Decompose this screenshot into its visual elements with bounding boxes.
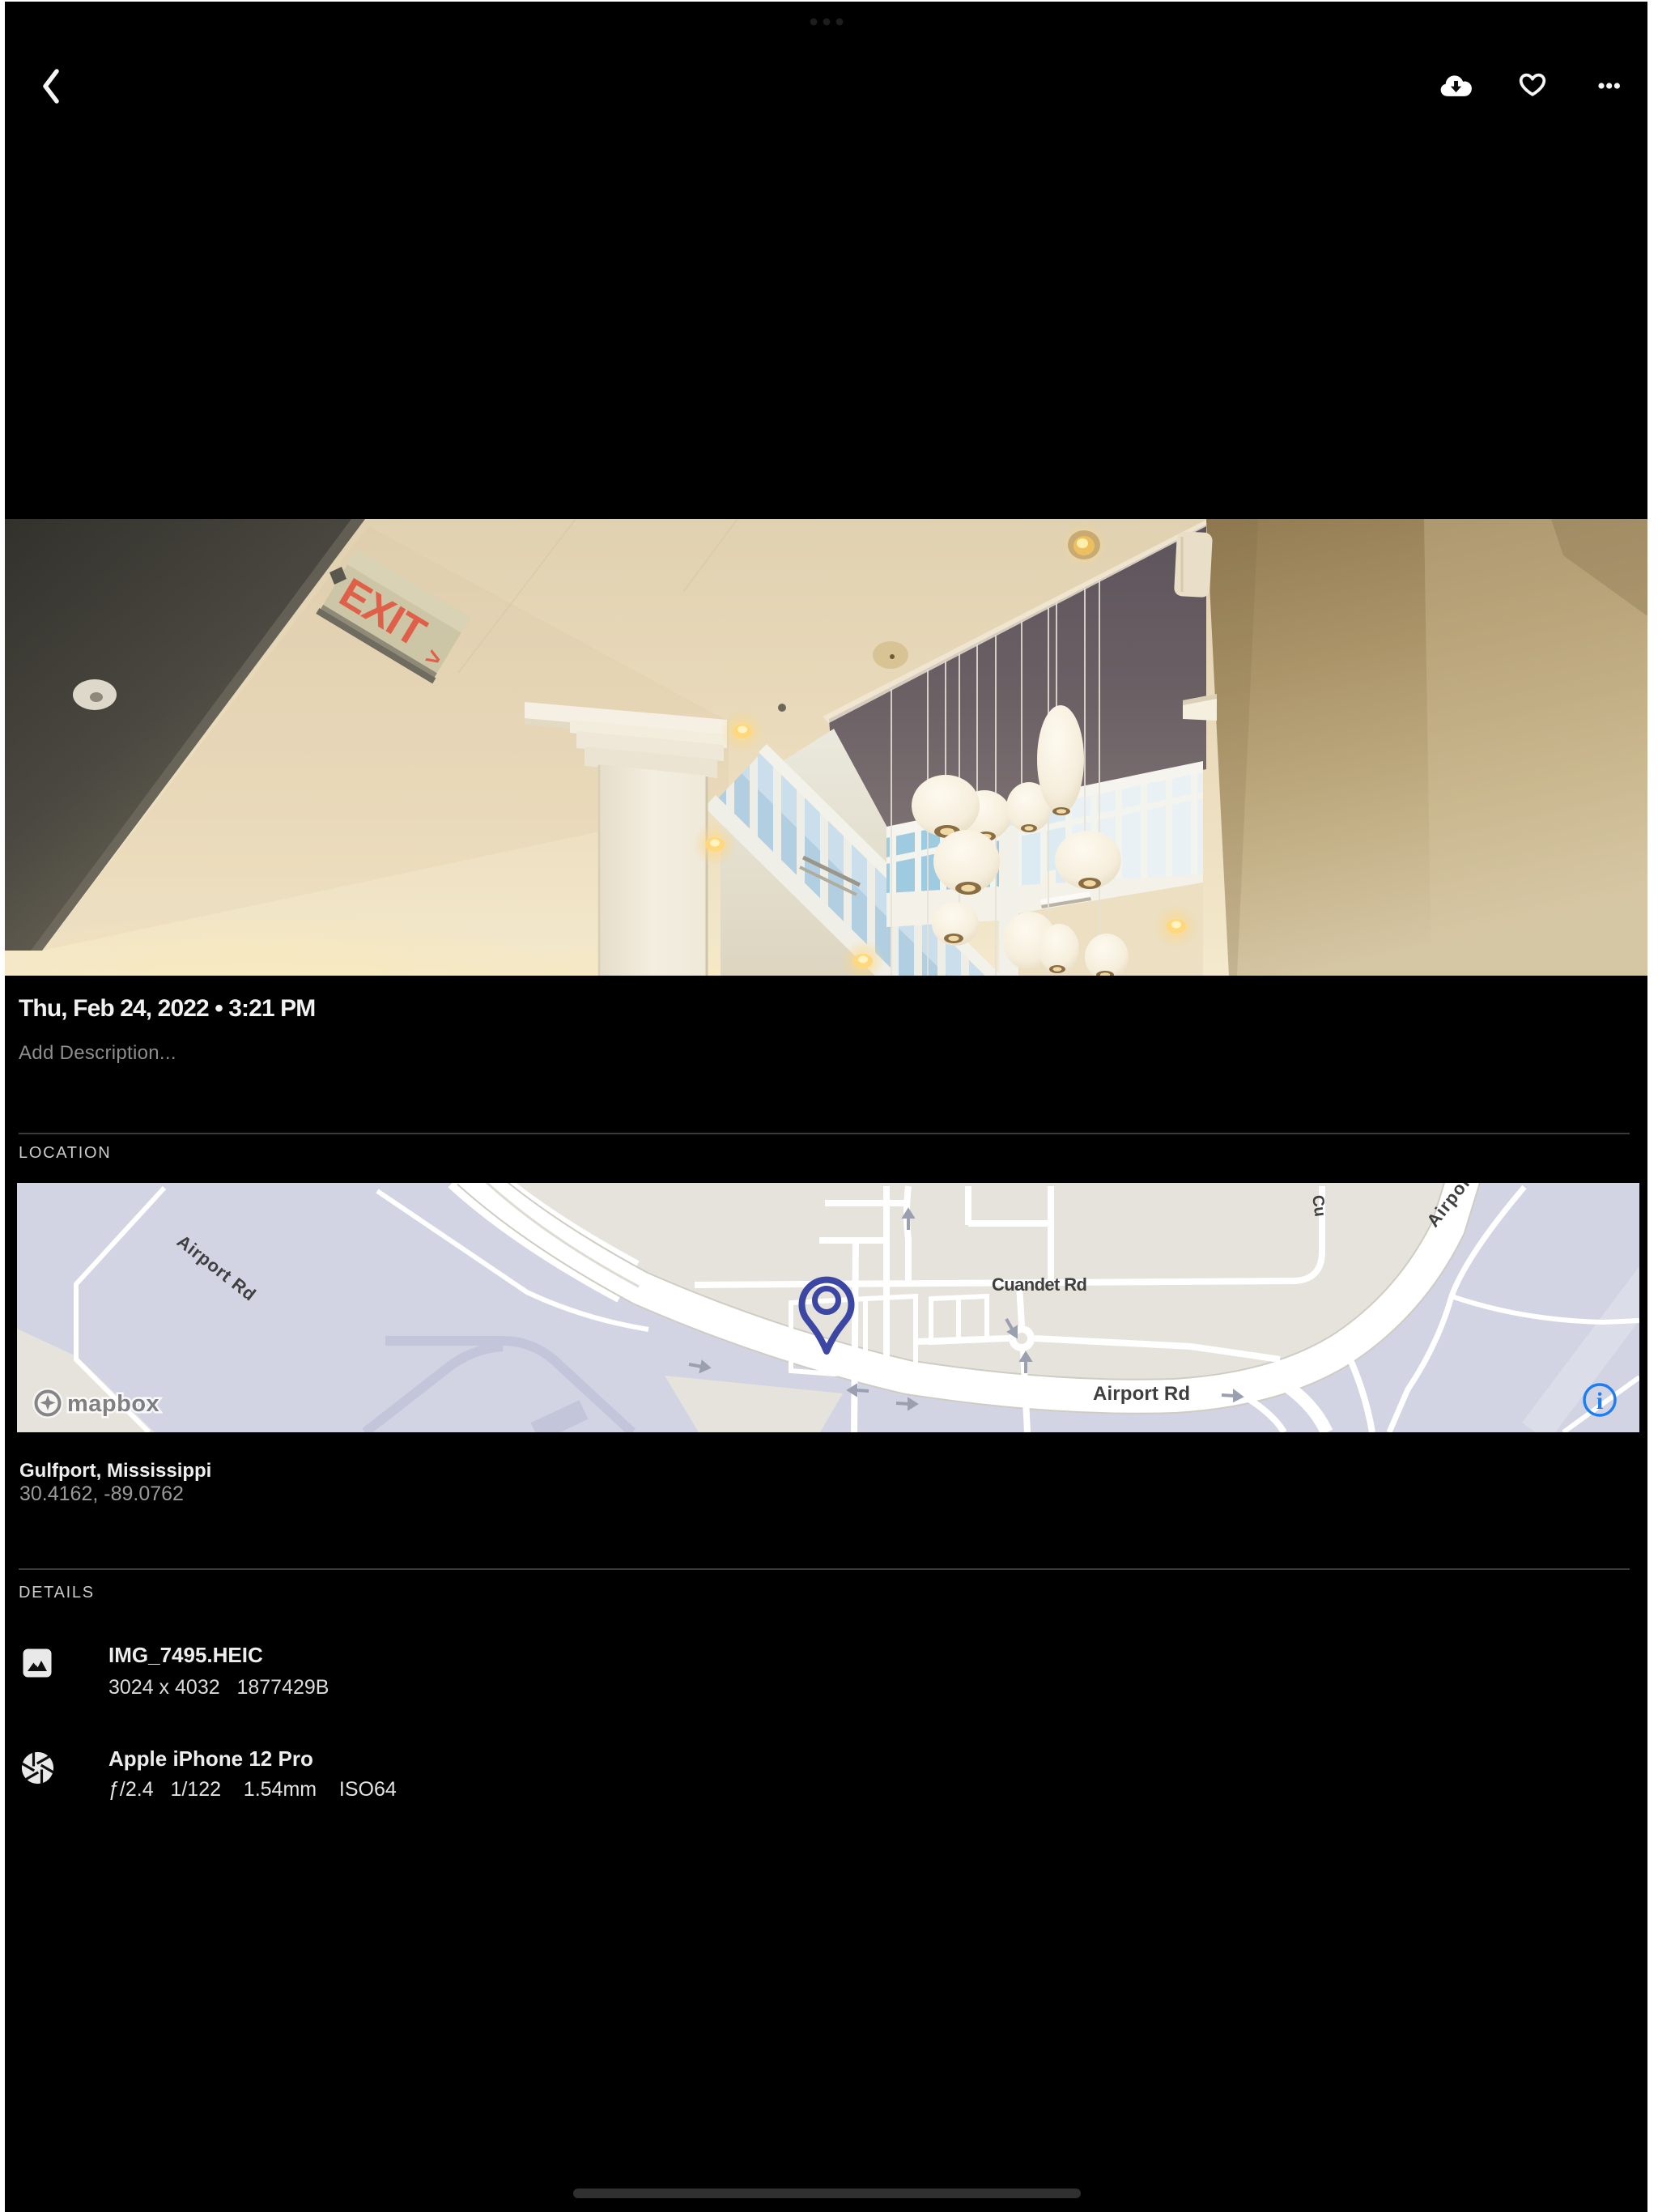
svg-text:Cu: Cu (1308, 1194, 1329, 1218)
svg-text:Airport Rd: Airport Rd (1093, 1383, 1190, 1405)
svg-text:Cuandet Rd: Cuandet Rd (992, 1274, 1087, 1295)
svg-text:mapbox: mapbox (67, 1391, 159, 1417)
svg-text:i: i (1596, 1388, 1603, 1414)
